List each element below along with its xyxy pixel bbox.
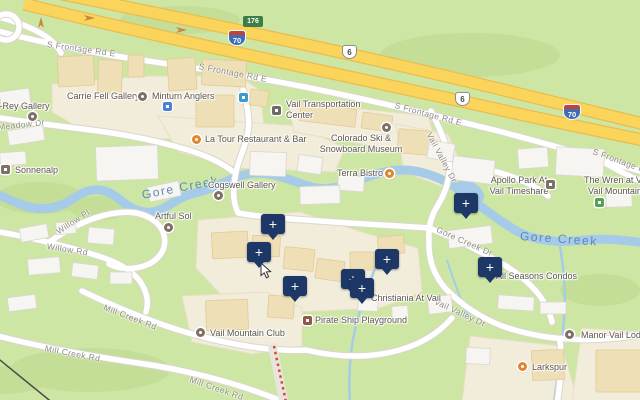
shopping-icon[interactable] (163, 102, 172, 111)
playground-icon[interactable] (303, 316, 312, 325)
poi-label-carrie-fell: Carrie Fell Gallery (67, 91, 140, 101)
lodging-pin-plus-glyph: + (358, 281, 366, 295)
lodging-pin-1[interactable]: + (454, 193, 478, 213)
us-route-6-shield: 6 (342, 45, 357, 59)
poi-label-vail-mountain-club: Vail Mountain Club (210, 328, 285, 338)
poi-label-la-tour: La Tour Restaurant & Bar (205, 134, 306, 144)
poi-label-vail-transportation-center: Vail Transportation Center (286, 99, 364, 122)
poi-label-artful-sol: Artful Sol (155, 211, 192, 221)
poi-label-cogswell-gallery: Cogswell Gallery (208, 180, 276, 190)
exit-badge-176: 176 (243, 16, 263, 27)
art-gallery-icon[interactable] (164, 223, 173, 232)
interstate-70-shield: 70 (563, 104, 581, 120)
transit-station-icon[interactable] (239, 93, 248, 102)
poi-label-christiania: Christiania At Vail (371, 293, 441, 303)
lodging-pin-plus-glyph: + (486, 260, 494, 274)
poi-label-sonnenalp: Sonnenalp (15, 165, 58, 175)
restaurant-icon[interactable] (192, 135, 201, 144)
interstate-70-shield: 70 (228, 30, 246, 46)
lodging-pin-3[interactable]: + (247, 242, 271, 262)
poi-label-pirate-ship-playground: Pirate Ship Playground (315, 315, 407, 325)
park-icon[interactable] (595, 198, 604, 207)
art-gallery-icon[interactable] (138, 92, 147, 101)
lodging-pin-4[interactable]: + (375, 249, 399, 269)
lodging-pin-plus-glyph: + (383, 252, 391, 266)
lodging-pin-8[interactable]: + (350, 278, 374, 298)
lodging-icon[interactable] (546, 180, 555, 189)
restaurant-icon[interactable] (518, 362, 527, 371)
poi-label-apollo-park: Apollo Park At Vail Timeshare (486, 175, 552, 198)
club-icon[interactable] (196, 328, 205, 337)
lodging-pin-plus-glyph: + (269, 217, 277, 231)
poi-label-the-wren-line2: Vail Mountain (588, 186, 640, 196)
interstate-70-number: 70 (564, 110, 580, 119)
poi-label-manor-vail: Manor Vail Lodge (581, 330, 640, 340)
poi-label-terra-bistro: Terra Bistro (337, 168, 383, 178)
map-base (0, 0, 640, 400)
restaurant-icon[interactable] (385, 169, 394, 178)
poi-label-larkspur: Larkspur (532, 362, 567, 372)
poi-label-minturn-anglers: Minturn Anglers (152, 91, 215, 101)
us-route-6-shield: 6 (455, 92, 470, 106)
interstate-70-number: 70 (229, 36, 245, 45)
map-canvas[interactable]: 176 70 70 6 6 S Frontage Rd E S Frontage… (0, 0, 640, 400)
museum-icon[interactable] (382, 123, 391, 132)
lodging-pin-plus-glyph: + (462, 196, 470, 210)
civic-building-icon[interactable] (272, 106, 281, 115)
poi-label-all-seasons: All Seasons Condos (496, 271, 577, 281)
poi-label-ski-museum: Colorado Ski & Snowboard Museum (313, 133, 409, 156)
art-gallery-icon[interactable] (214, 191, 223, 200)
lodging-pin-plus-glyph: + (255, 245, 263, 259)
lodging-pin-5[interactable]: + (478, 257, 502, 277)
lodging-pin-plus-glyph: + (291, 279, 299, 293)
art-gallery-icon[interactable] (28, 112, 37, 121)
lodging-pin-2[interactable]: + (261, 214, 285, 234)
generic-poi-icon[interactable] (565, 330, 574, 339)
poi-label-the-wren-line1: The Wren at Vail (584, 175, 640, 185)
lodging-pin-7[interactable]: + (283, 276, 307, 296)
poi-label-trey-gallery: t-Rey Gallery (0, 101, 50, 111)
lodging-icon[interactable] (1, 165, 10, 174)
